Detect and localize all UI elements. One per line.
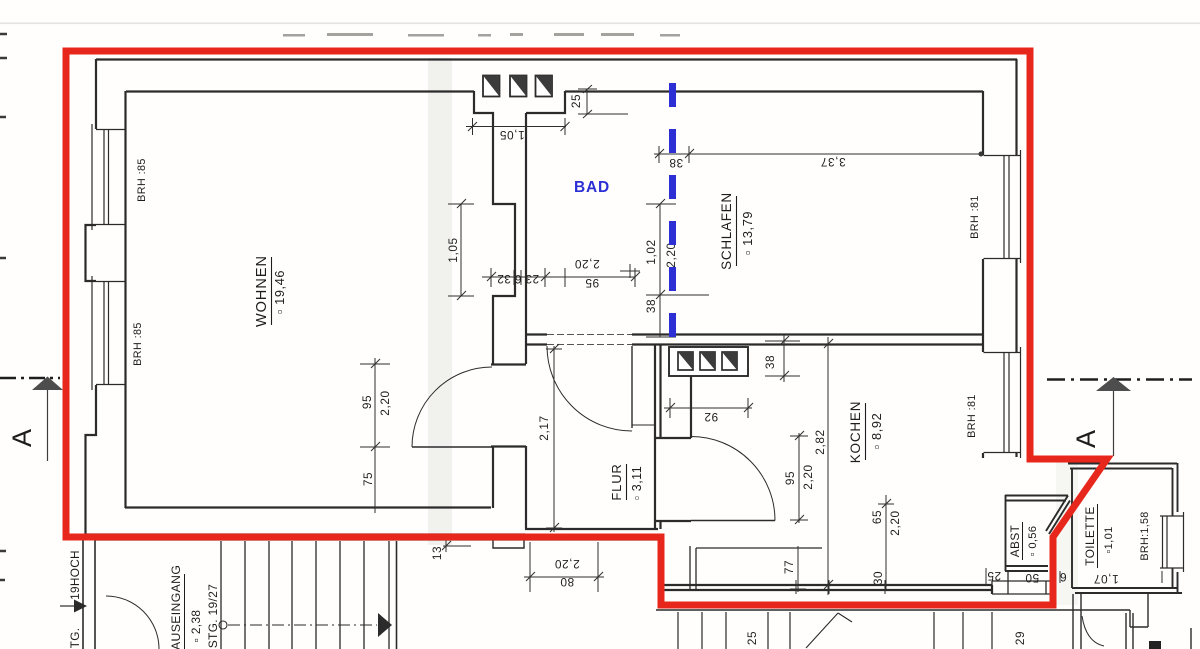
svg-text:TOILETTE: TOILETTE [1083,506,1097,565]
svg-text:STG.: STG. [68,628,82,649]
svg-text:2,20: 2,20 [574,257,599,271]
svg-text:▫ 2,38: ▫ 2,38 [189,610,203,643]
svg-text:2,20: 2,20 [554,557,579,571]
svg-text:2,20: 2,20 [664,242,678,267]
svg-text:38: 38 [763,355,777,369]
svg-text:BRH :85: BRH :85 [136,158,148,202]
svg-text:38: 38 [669,156,683,170]
svg-text:A: A [1071,430,1101,448]
svg-text:1,05: 1,05 [499,128,524,142]
svg-text:80: 80 [560,575,574,589]
svg-text:▫ 13,79: ▫ 13,79 [740,211,755,255]
svg-text:38: 38 [644,299,658,313]
svg-text:25: 25 [987,569,1001,583]
svg-text:29: 29 [1013,631,1027,645]
svg-text:3,37: 3,37 [820,155,845,169]
svg-text:STG. 19/27: STG. 19/27 [206,584,220,648]
svg-text:2,17: 2,17 [537,415,551,440]
svg-text:92: 92 [704,410,718,424]
svg-text:2,20: 2,20 [801,464,815,489]
svg-text:▫ 3,11: ▫ 3,11 [630,466,644,500]
svg-text:95: 95 [360,395,374,409]
svg-text:▫ 19,46: ▫ 19,46 [272,270,287,314]
svg-text:95: 95 [783,471,797,485]
svg-text:13: 13 [430,546,444,560]
svg-text:▫ 8,92: ▫ 8,92 [869,413,884,450]
svg-text:A: A [7,429,37,447]
svg-text:BAD: BAD [574,179,610,196]
svg-text:75: 75 [361,472,375,486]
svg-text:19HOCH: 19HOCH [68,550,82,600]
svg-text:BRH :81: BRH :81 [969,195,981,239]
svg-text:65: 65 [870,510,884,524]
svg-text:HAUSEINGANG: HAUSEINGANG [169,565,183,649]
svg-text:50: 50 [1025,571,1039,585]
svg-text:30: 30 [871,571,885,585]
svg-text:77: 77 [782,560,796,574]
svg-text:▫ 0,56: ▫ 0,56 [1027,526,1039,557]
svg-text:2,20: 2,20 [888,510,902,535]
svg-text:BRH :85: BRH :85 [132,322,144,366]
svg-text:BRH:1,58: BRH:1,58 [1139,511,1151,560]
svg-text:2,82: 2,82 [813,429,827,454]
svg-text:WOHNEN: WOHNEN [254,255,270,327]
svg-text:SCHLAFEN: SCHLAFEN [719,192,734,270]
svg-text:1,02: 1,02 [644,239,658,264]
svg-text:BRH :81: BRH :81 [966,394,978,438]
svg-text:1,07: 1,07 [1093,572,1118,586]
svg-text:25: 25 [569,94,583,108]
svg-text:25: 25 [745,631,759,645]
svg-text:FLUR: FLUR [609,463,624,500]
svg-text:ABST: ABST [1008,525,1022,557]
svg-text:95: 95 [585,276,599,290]
svg-text:▫1,01: ▫1,01 [1103,526,1115,553]
svg-text:23 6 32: 23 6 32 [497,272,539,286]
svg-text:1,05: 1,05 [446,237,460,262]
svg-text:6: 6 [1059,570,1066,584]
svg-text:2,20: 2,20 [378,390,392,415]
svg-text:KOCHEN: KOCHEN [848,401,863,464]
